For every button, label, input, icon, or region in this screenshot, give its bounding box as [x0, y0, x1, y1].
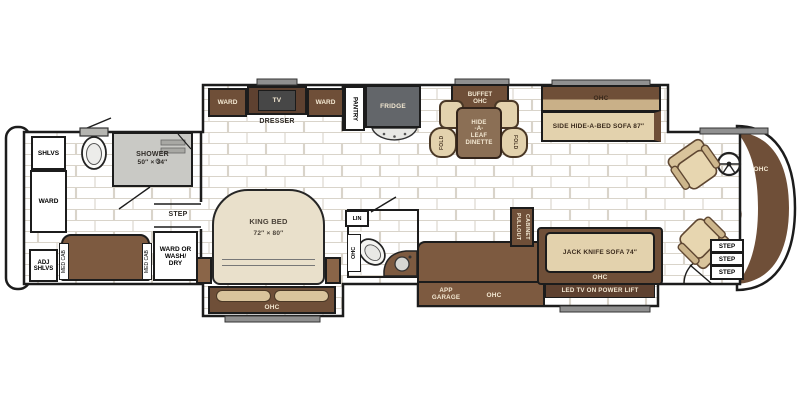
king-bed-size: 72″ × 80″: [214, 229, 323, 239]
rear-toilet-icon: [80, 128, 108, 169]
floorplan-base-drawing: [0, 0, 800, 400]
living-ohc-label: OHC: [585, 272, 615, 284]
shelves-cabinet: SHLVS: [31, 136, 66, 170]
rv-floorplan: SHLVS WARD ADJ SHLVS SHOWER 50″ × 34″ ST…: [0, 0, 800, 400]
bed-ohc-label: OHC: [210, 302, 334, 313]
rear-wardrobe: WARD: [30, 170, 67, 233]
shower-label: SHOWER 50″ × 34″: [115, 147, 190, 171]
bed-headboard-cabinet: OHC: [208, 286, 336, 314]
bed-pillow-right: [274, 290, 329, 302]
dinette-fold-chair-left: FOLD: [429, 127, 457, 158]
medicine-cabinet-right: MED CAB: [142, 243, 152, 280]
king-bed: KING BED 72″ × 80″: [212, 189, 325, 285]
bedroom-wardrobe-right: WARD: [307, 88, 344, 117]
adjustable-shelves: ADJ SHLVS: [29, 249, 58, 282]
bed-fold-line: [222, 259, 315, 266]
nightstand-left: [196, 257, 212, 284]
vanity-counter: [61, 234, 150, 281]
pantry-cabinet: PANTRY: [344, 86, 365, 131]
fridge: FRIDGE: [365, 85, 421, 128]
hide-a-leaf-dinette-table: HIDE -A- LEAF DINETTE: [456, 107, 502, 159]
side-hide-a-bed-sofa: SIDE HIDE-A-BED SOFA 87″: [541, 111, 661, 142]
dresser-label: DRESSER: [249, 116, 305, 128]
entry-step-1: STEP: [710, 239, 744, 253]
kitchen-slide-cabinet: APP GARAGE OHC: [417, 281, 545, 307]
led-tv-power-lift: LED TV ON POWER LIFT: [545, 284, 655, 298]
entry-step-2: STEP: [710, 252, 744, 266]
medicine-cabinet-left: MED CAB: [59, 243, 69, 280]
jack-knife-sofa: JACK KNIFE SOFA 74″: [545, 232, 655, 273]
sofa-ohc-cabinet: OHC: [541, 85, 661, 112]
appliance-garage-label: APP GARAGE: [423, 286, 469, 304]
front-ohc-label: OHC: [747, 164, 775, 176]
pullout-cabinet: PULLOUT CABINET: [510, 207, 534, 247]
bedroom-wardrobe-left: WARD: [208, 88, 247, 117]
linen-cabinet: LIN: [345, 210, 369, 227]
bed-pillow-left: [216, 290, 271, 302]
nightstand-right: [325, 257, 341, 284]
kitchen-ohc-label: OHC: [477, 290, 511, 301]
dinette-fold-chair-right: FOLD: [500, 127, 528, 158]
king-bed-label: KING BED: [214, 217, 323, 228]
half-bath-ohc: OHC: [347, 234, 361, 272]
entry-step-3: STEP: [710, 265, 744, 280]
ward-or-washer-dryer: WARD OR WASH/ DRY: [153, 231, 198, 281]
kitchen-counter: [417, 241, 545, 285]
bedroom-tv: TV: [258, 90, 296, 111]
rear-step-label: STEP: [156, 208, 200, 221]
